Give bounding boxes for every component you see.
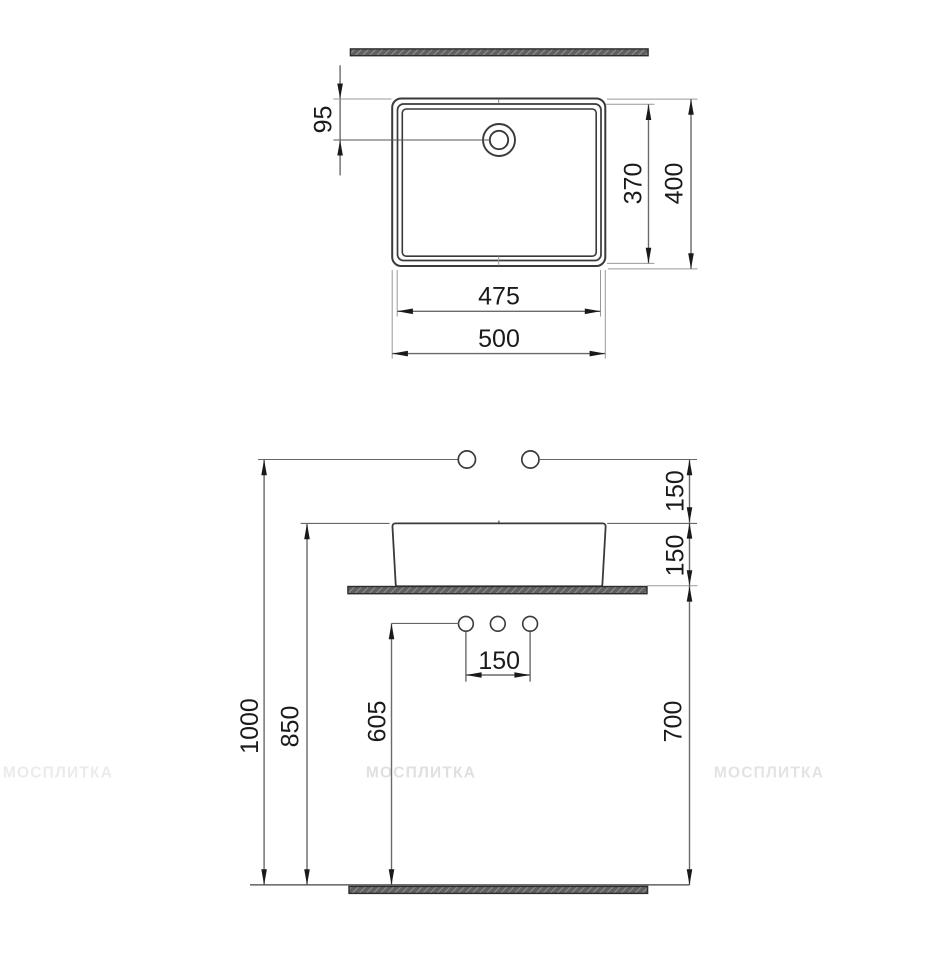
svg-text:605: 605 [363, 701, 391, 743]
svg-text:150: 150 [478, 647, 520, 675]
svg-text:700: 700 [659, 701, 687, 743]
svg-text:850: 850 [277, 706, 305, 748]
svg-text:500: 500 [478, 325, 520, 353]
svg-text:МОСПЛИТКА: МОСПЛИТКА [3, 765, 113, 782]
svg-text:475: 475 [478, 283, 520, 311]
svg-text:МОСПЛИТКА: МОСПЛИТКА [714, 765, 824, 782]
svg-text:150: 150 [662, 535, 690, 577]
svg-text:1000: 1000 [236, 698, 264, 754]
svg-text:370: 370 [620, 163, 648, 205]
svg-text:МОСПЛИТКА: МОСПЛИТКА [366, 765, 476, 782]
svg-text:95: 95 [309, 106, 337, 134]
svg-text:400: 400 [661, 163, 689, 205]
svg-text:150: 150 [662, 470, 690, 512]
